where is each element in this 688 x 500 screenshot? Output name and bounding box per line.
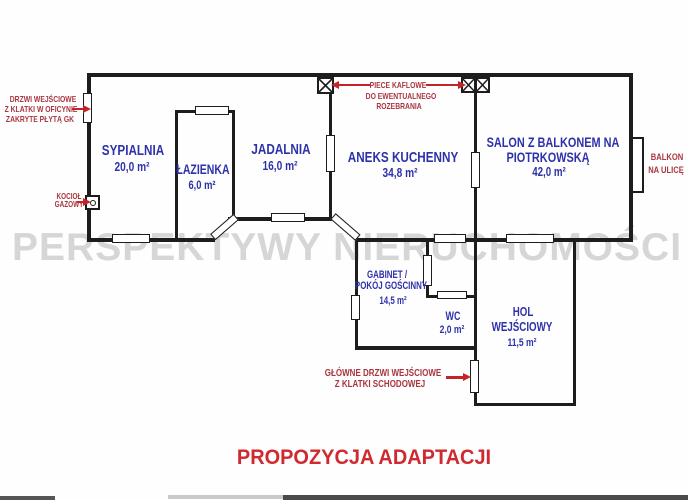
room-label-hol-line2: WEJŚCIOWY [492, 321, 553, 334]
room-area-hol: 11,5 m² [507, 338, 536, 350]
room-label-gabinet-line2: POKÓJ GOŚCINNY [355, 281, 427, 293]
arrow-right-icon [426, 84, 459, 86]
floor-plan: PERSPEKTYWY NIERUCHOMOŚCI SYPIALNIA 20 [0, 0, 688, 500]
annotation-oficyna-line3: ZAKRYTE PŁYTĄ GK [6, 115, 74, 124]
annotation-oficyna-line2: Z KLATKI W OFICYNIE [5, 105, 78, 114]
wall-top [87, 73, 633, 77]
annotation-oficyna-line1: DRZWI WEJŚCIOWE [10, 95, 76, 104]
door-lazienka [195, 106, 229, 115]
room-label-wc: WC [446, 311, 461, 323]
scan-artifact [0, 496, 55, 500]
annotation-stoves-line1: PIECE KAFLOWE [370, 81, 427, 90]
room-area-gabinet: 14,5 m² [379, 296, 406, 308]
annotation-stoves-line2: DO EWENTUALNEGO [366, 92, 437, 101]
room-area-lazienka: 6,0 m² [188, 179, 215, 192]
annotation-main-door-line1: GŁÓWNE DRZWI WEJŚCIOWE [325, 369, 441, 380]
window-sypialnia [112, 234, 150, 243]
room-label-sypialnia: SYPIALNIA [102, 143, 164, 159]
scan-artifact [168, 495, 283, 499]
arrow-right-icon [72, 108, 84, 110]
room-area-aneks: 34,8 m² [383, 166, 418, 180]
wall-salon-bottom [573, 238, 633, 242]
door-main-entrance [470, 360, 479, 393]
window-gabinet [351, 295, 360, 320]
room-label-jadalnia: JADALNIA [251, 142, 310, 158]
wall-hol-bottom [474, 403, 576, 406]
window-jadalnia [271, 213, 305, 222]
room-label-salon-line1: SALON Z BALKONEM NA [487, 135, 620, 150]
wall-bottom-left [87, 238, 215, 242]
door-jadalnia-aneks [326, 135, 335, 172]
arrow-right-icon [77, 201, 84, 203]
room-label-hol-line1: HOL [513, 306, 534, 319]
room-area-sypialnia: 20,0 m² [115, 160, 150, 174]
door-aneks-passage [434, 234, 466, 243]
room-label-lazienka: ŁAZIENKA [176, 163, 229, 177]
plan-title: PROPOZYCJA ADAPTACJI [237, 446, 491, 470]
wall-hol-right [573, 238, 576, 406]
arrow-right-icon [446, 376, 464, 379]
arrow-left-icon [338, 84, 371, 86]
annotation-balcony-line2: NA ULICĘ [648, 166, 684, 176]
door-hol-aneks [506, 234, 554, 243]
door-wc [437, 291, 467, 299]
room-area-wc: 2,0 m² [440, 325, 465, 337]
wall-bathroom-right [232, 110, 235, 221]
annotation-main-door-line2: Z KLATKI SCHODOWEJ [335, 380, 426, 391]
scan-artifact [283, 495, 688, 500]
annotation-stoves-line3: ROZEBRANIA [376, 102, 421, 111]
room-area-salon: 42,0 m² [532, 166, 566, 179]
annotation-balcony-line1: BALKON [651, 153, 684, 163]
door-aneks-salon [471, 152, 480, 188]
wall-gabinet-wc-bottom [355, 346, 477, 350]
room-label-aneks: ANEKS KUCHENNY [348, 150, 459, 166]
room-label-salon-line2: PIOTRKOWSKĄ [506, 150, 589, 165]
wall-gabinet-left [355, 238, 358, 350]
room-area-jadalnia: 16,0 m² [263, 159, 298, 173]
wall-right [629, 73, 633, 242]
